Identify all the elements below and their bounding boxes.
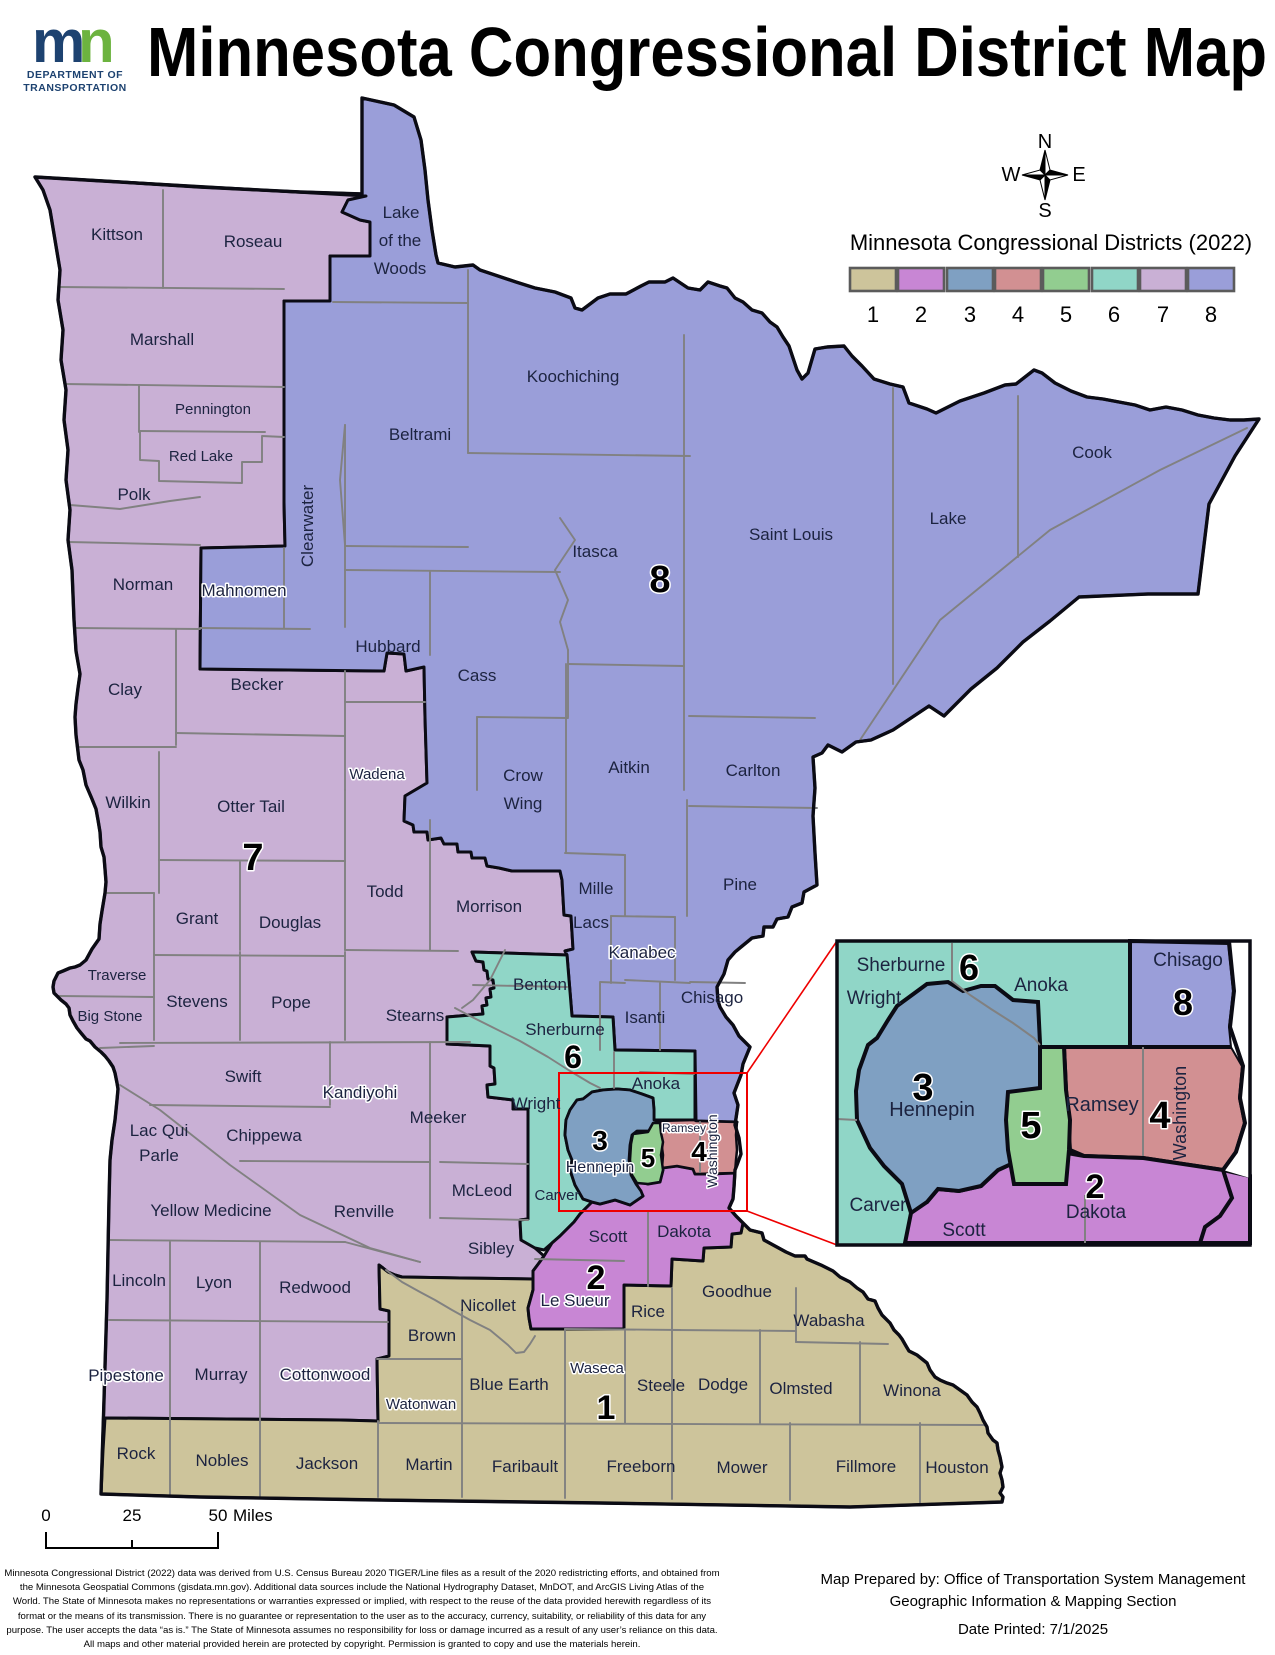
svg-text:1: 1 <box>867 302 879 327</box>
svg-text:Miles: Miles <box>233 1506 273 1525</box>
svg-text:Renville: Renville <box>334 1202 394 1221</box>
svg-text:Anoka: Anoka <box>632 1074 681 1093</box>
svg-text:Otter Tail: Otter Tail <box>217 797 285 816</box>
svg-text:Houston: Houston <box>925 1458 988 1477</box>
svg-text:1: 1 <box>597 1389 616 1427</box>
svg-text:Hennepin: Hennepin <box>566 1159 635 1176</box>
svg-text:Chippewa: Chippewa <box>226 1126 302 1145</box>
svg-text:Pine: Pine <box>723 875 757 894</box>
svg-text:Steele: Steele <box>637 1376 685 1395</box>
svg-text:7: 7 <box>242 837 263 879</box>
svg-text:4: 4 <box>1149 1095 1170 1137</box>
svg-text:Lincoln: Lincoln <box>112 1271 166 1290</box>
svg-text:Sherburne: Sherburne <box>525 1020 604 1039</box>
svg-text:Pipestone: Pipestone <box>88 1366 164 1385</box>
svg-text:Minnesota Congressional Distri: Minnesota Congressional Districts (2022) <box>850 230 1252 255</box>
svg-text:Meeker: Meeker <box>410 1108 467 1127</box>
svg-text:Beltrami: Beltrami <box>389 425 451 444</box>
svg-text:Parle: Parle <box>139 1146 179 1165</box>
svg-text:Cook: Cook <box>1072 443 1112 462</box>
svg-text:Hubbard: Hubbard <box>355 637 420 656</box>
svg-text:8: 8 <box>1205 302 1217 327</box>
svg-text:Dakota: Dakota <box>657 1222 711 1241</box>
svg-text:Dodge: Dodge <box>698 1375 748 1394</box>
svg-text:Martin: Martin <box>405 1455 452 1474</box>
svg-text:Isanti: Isanti <box>625 1008 666 1027</box>
svg-text:Itasca: Itasca <box>572 542 618 561</box>
svg-text:Stearns: Stearns <box>386 1006 445 1025</box>
svg-text:Wing: Wing <box>504 794 543 813</box>
svg-text:2: 2 <box>1086 1168 1105 1206</box>
svg-text:Watonwan: Watonwan <box>386 1396 456 1413</box>
svg-text:Lake: Lake <box>383 203 420 222</box>
svg-text:Red Lake: Red Lake <box>169 448 233 465</box>
svg-text:TRANSPORTATION: TRANSPORTATION <box>23 82 126 94</box>
svg-text:3: 3 <box>912 1067 933 1109</box>
svg-text:Waseca: Waseca <box>570 1360 624 1377</box>
svg-text:of the: of the <box>379 231 422 250</box>
svg-text:Yellow Medicine: Yellow Medicine <box>150 1201 271 1220</box>
svg-text:Chisago: Chisago <box>681 988 743 1007</box>
svg-text:McLeod: McLeod <box>452 1181 512 1200</box>
svg-text:Pope: Pope <box>271 993 311 1012</box>
svg-text:Redwood: Redwood <box>279 1278 351 1297</box>
svg-text:All maps and other material pr: All maps and other material provided her… <box>84 1639 641 1650</box>
svg-text:Ramsey: Ramsey <box>662 1121 706 1135</box>
svg-text:Grant: Grant <box>176 909 219 928</box>
svg-text:S: S <box>1038 200 1051 222</box>
svg-text:7: 7 <box>1157 302 1169 327</box>
svg-text:25: 25 <box>123 1506 142 1525</box>
svg-text:Nobles: Nobles <box>196 1451 249 1470</box>
svg-text:Map Prepared by: Office of Tra: Map Prepared by: Office of Transportatio… <box>821 1571 1247 1588</box>
svg-text:Blue Earth: Blue Earth <box>469 1375 548 1394</box>
svg-text:Anoka: Anoka <box>1014 975 1068 996</box>
svg-text:Date Printed: 7/1/2025: Date Printed: 7/1/2025 <box>958 1621 1108 1638</box>
svg-text:Norman: Norman <box>113 575 173 594</box>
svg-text:Crow: Crow <box>503 766 543 785</box>
svg-text:Benton: Benton <box>513 975 567 994</box>
svg-text:Kanabec: Kanabec <box>608 943 676 962</box>
svg-text:3: 3 <box>964 302 976 327</box>
svg-text:4: 4 <box>691 1136 707 1167</box>
svg-text:Clay: Clay <box>108 680 143 699</box>
svg-text:50: 50 <box>209 1506 228 1525</box>
svg-text:E: E <box>1072 164 1085 186</box>
svg-text:purpose. The user accepts the: purpose. The user accepts the data “as i… <box>6 1625 717 1636</box>
svg-text:Swift: Swift <box>225 1067 262 1086</box>
svg-text:format or the means of its tra: format or the means of its transmission.… <box>18 1611 706 1622</box>
svg-text:Wright: Wright <box>512 1094 561 1113</box>
svg-text:m: m <box>32 8 85 75</box>
svg-text:6: 6 <box>1108 302 1120 327</box>
svg-text:Nicollet: Nicollet <box>460 1296 516 1315</box>
svg-text:Pennington: Pennington <box>175 401 251 418</box>
svg-text:Kandiyohi: Kandiyohi <box>323 1083 398 1102</box>
svg-text:Lake: Lake <box>930 509 967 528</box>
svg-text:Cottonwood: Cottonwood <box>280 1365 371 1384</box>
svg-text:Wabasha: Wabasha <box>793 1311 865 1330</box>
svg-text:4: 4 <box>1012 302 1024 327</box>
svg-text:Saint Louis: Saint Louis <box>749 525 833 544</box>
svg-text:DEPARTMENT OF: DEPARTMENT OF <box>27 69 123 81</box>
svg-text:Polk: Polk <box>117 485 151 504</box>
svg-text:Lac Qui: Lac Qui <box>130 1121 189 1140</box>
svg-text:Koochiching: Koochiching <box>527 367 620 386</box>
svg-text:0: 0 <box>41 1506 50 1525</box>
svg-text:Clearwater: Clearwater <box>298 485 317 568</box>
svg-text:N: N <box>1038 131 1052 153</box>
svg-text:Becker: Becker <box>231 675 284 694</box>
svg-text:Scott: Scott <box>589 1227 628 1246</box>
svg-text:Jackson: Jackson <box>296 1454 358 1473</box>
svg-text:Fillmore: Fillmore <box>836 1457 896 1476</box>
svg-text:Murray: Murray <box>195 1365 248 1384</box>
svg-text:8: 8 <box>649 559 670 601</box>
svg-text:Big Stone: Big Stone <box>77 1008 142 1025</box>
svg-text:2: 2 <box>915 302 927 327</box>
svg-text:Wilkin: Wilkin <box>105 793 150 812</box>
svg-text:Chisago: Chisago <box>1153 950 1223 971</box>
svg-text:Cass: Cass <box>458 666 497 685</box>
svg-text:Rice: Rice <box>631 1302 665 1321</box>
svg-text:5: 5 <box>641 1143 655 1173</box>
svg-text:Washington: Washington <box>1170 1066 1190 1160</box>
svg-text:Sibley: Sibley <box>468 1239 515 1258</box>
svg-text:Minnesota Congressional Distri: Minnesota Congressional District Map <box>147 13 1267 91</box>
svg-text:Mille: Mille <box>579 879 614 898</box>
svg-text:Aitkin: Aitkin <box>608 758 650 777</box>
svg-text:Carver: Carver <box>534 1187 579 1204</box>
svg-text:Stevens: Stevens <box>166 992 227 1011</box>
svg-text:Carlton: Carlton <box>726 761 781 780</box>
svg-text:5: 5 <box>1020 1105 1041 1147</box>
svg-text:Wadena: Wadena <box>349 766 405 783</box>
svg-text:5: 5 <box>1060 302 1072 327</box>
svg-text:Wright: Wright <box>847 988 902 1009</box>
svg-text:Lacs: Lacs <box>573 913 609 932</box>
svg-text:Traverse: Traverse <box>88 967 147 984</box>
svg-text:Faribault: Faribault <box>492 1457 558 1476</box>
svg-text:Todd: Todd <box>367 882 404 901</box>
svg-text:Woods: Woods <box>374 259 427 278</box>
svg-text:Mahnomen: Mahnomen <box>201 581 286 600</box>
svg-text:6: 6 <box>959 947 979 988</box>
svg-text:Minnesota Congressional Distri: Minnesota Congressional District (2022) … <box>4 1568 719 1579</box>
svg-text:2: 2 <box>587 1259 606 1297</box>
svg-text:Winona: Winona <box>883 1381 941 1400</box>
svg-text:Marshall: Marshall <box>130 330 194 349</box>
svg-text:Morrison: Morrison <box>456 897 522 916</box>
svg-text:Ramsey: Ramsey <box>1065 1094 1138 1116</box>
svg-text:the Minnesota Geospatial Commo: the Minnesota Geospatial Commons (gisdat… <box>20 1582 704 1593</box>
svg-text:Douglas: Douglas <box>259 913 321 932</box>
svg-text:World. The State of Minnesota: World. The State of Minnesota makes no r… <box>13 1596 711 1607</box>
svg-text:8: 8 <box>1173 982 1193 1023</box>
svg-text:Carver: Carver <box>849 1195 907 1216</box>
svg-text:Brown: Brown <box>408 1326 456 1345</box>
svg-text:Lyon: Lyon <box>196 1273 232 1292</box>
svg-text:Geographic Information & Mappi: Geographic Information & Mapping Section <box>890 1593 1177 1610</box>
svg-text:Rock: Rock <box>117 1444 156 1463</box>
svg-text:3: 3 <box>592 1125 608 1156</box>
svg-text:Sherburne: Sherburne <box>857 955 946 976</box>
svg-text:Roseau: Roseau <box>224 232 283 251</box>
svg-text:Freeborn: Freeborn <box>607 1457 676 1476</box>
svg-text:Goodhue: Goodhue <box>702 1282 772 1301</box>
svg-text:Kittson: Kittson <box>91 225 143 244</box>
svg-text:Olmsted: Olmsted <box>769 1379 832 1398</box>
svg-text:Scott: Scott <box>942 1220 986 1241</box>
svg-text:Mower: Mower <box>716 1458 767 1477</box>
svg-text:6: 6 <box>564 1039 582 1075</box>
svg-text:W: W <box>1002 164 1021 186</box>
